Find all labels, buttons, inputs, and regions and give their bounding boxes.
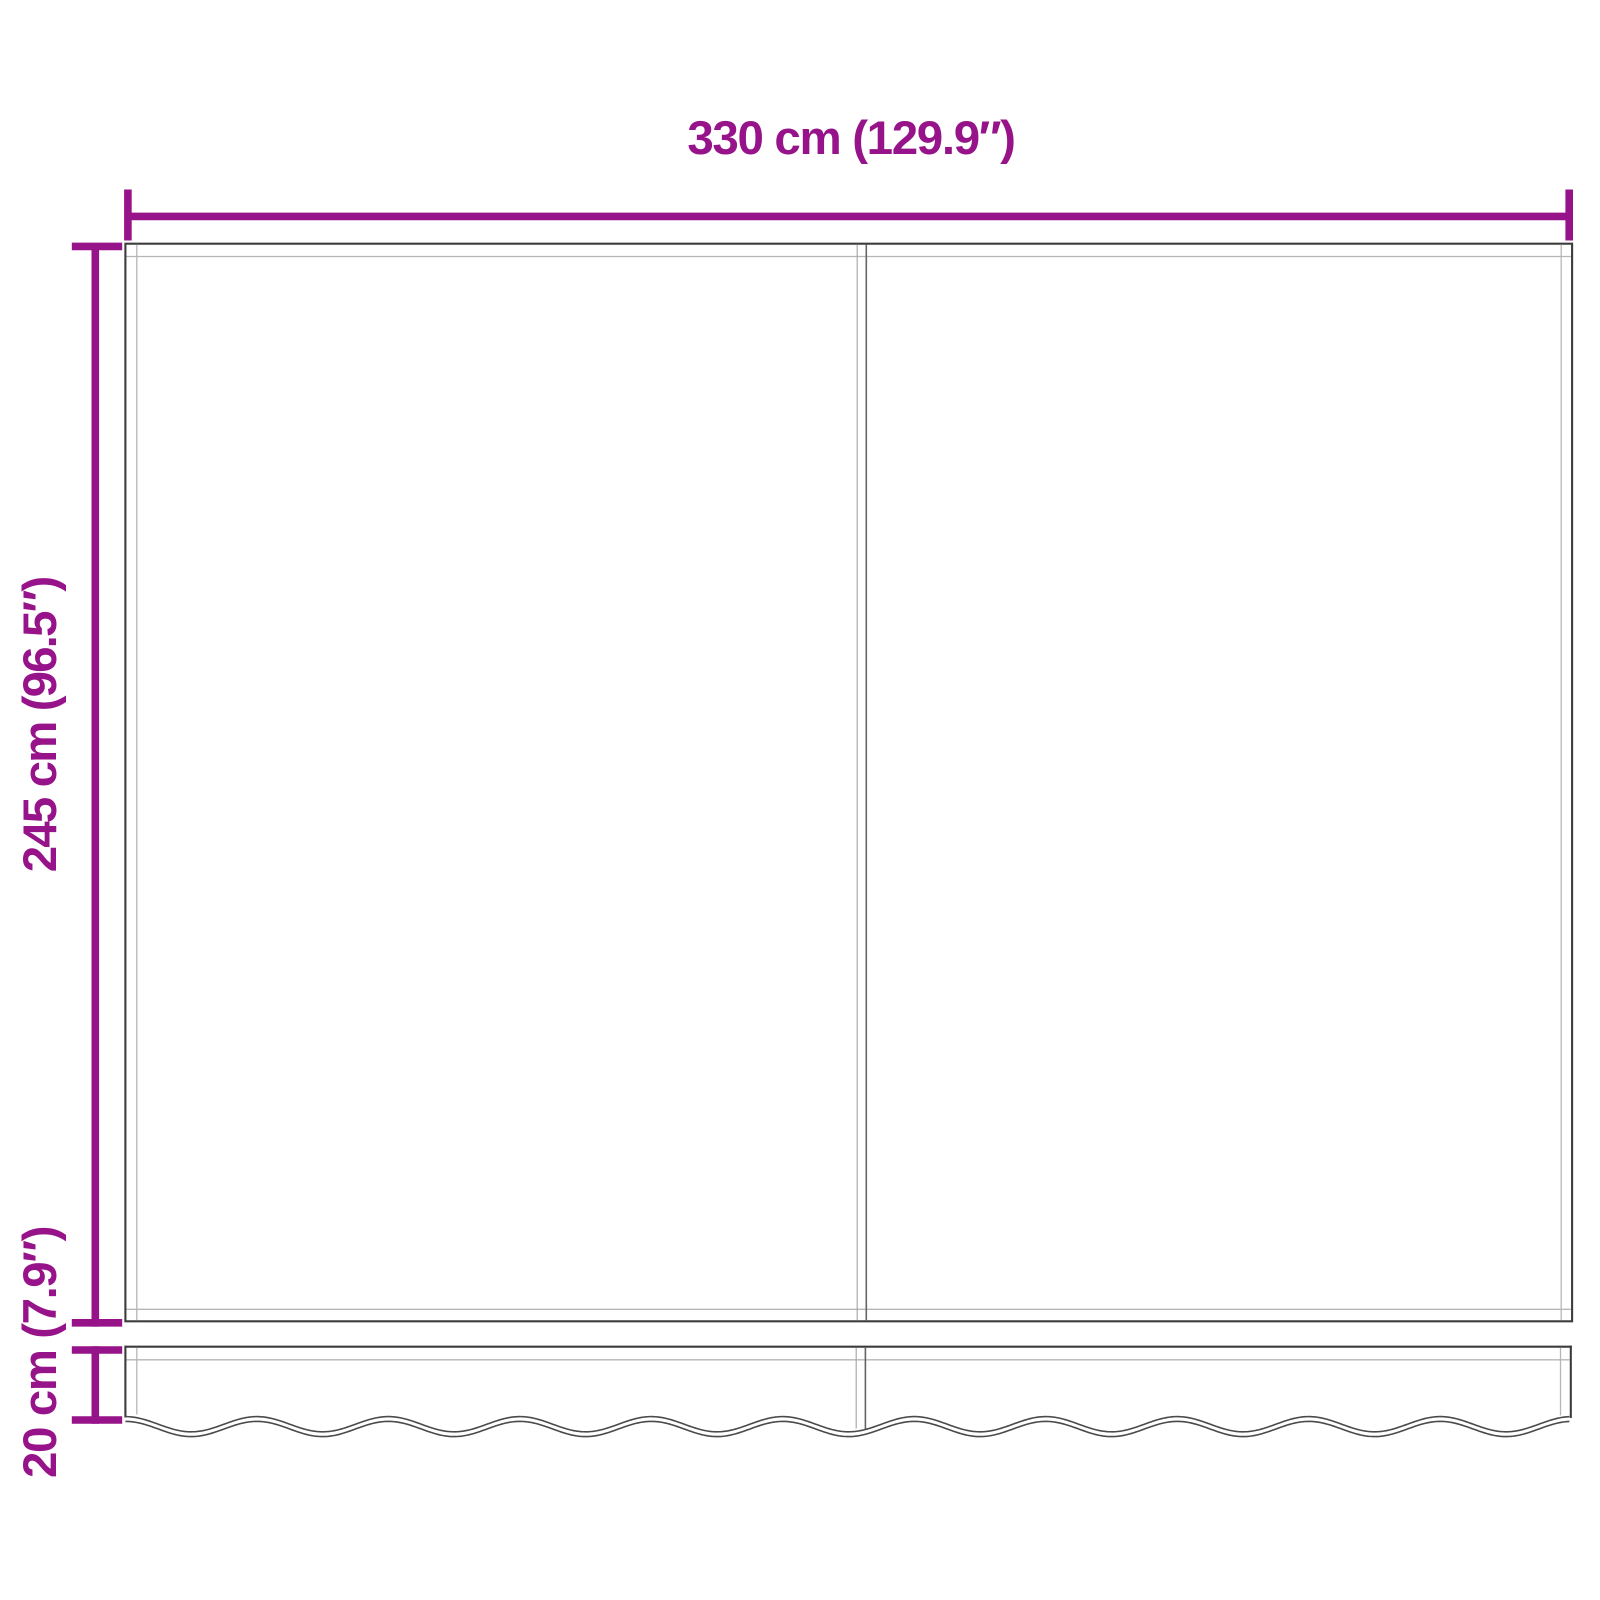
svg-text:20 cm (7.9″): 20 cm (7.9″) xyxy=(14,1227,67,1478)
svg-text:245 cm (96.5″): 245 cm (96.5″) xyxy=(14,578,67,873)
svg-text:330 cm (129.9″): 330 cm (129.9″) xyxy=(687,112,1014,165)
